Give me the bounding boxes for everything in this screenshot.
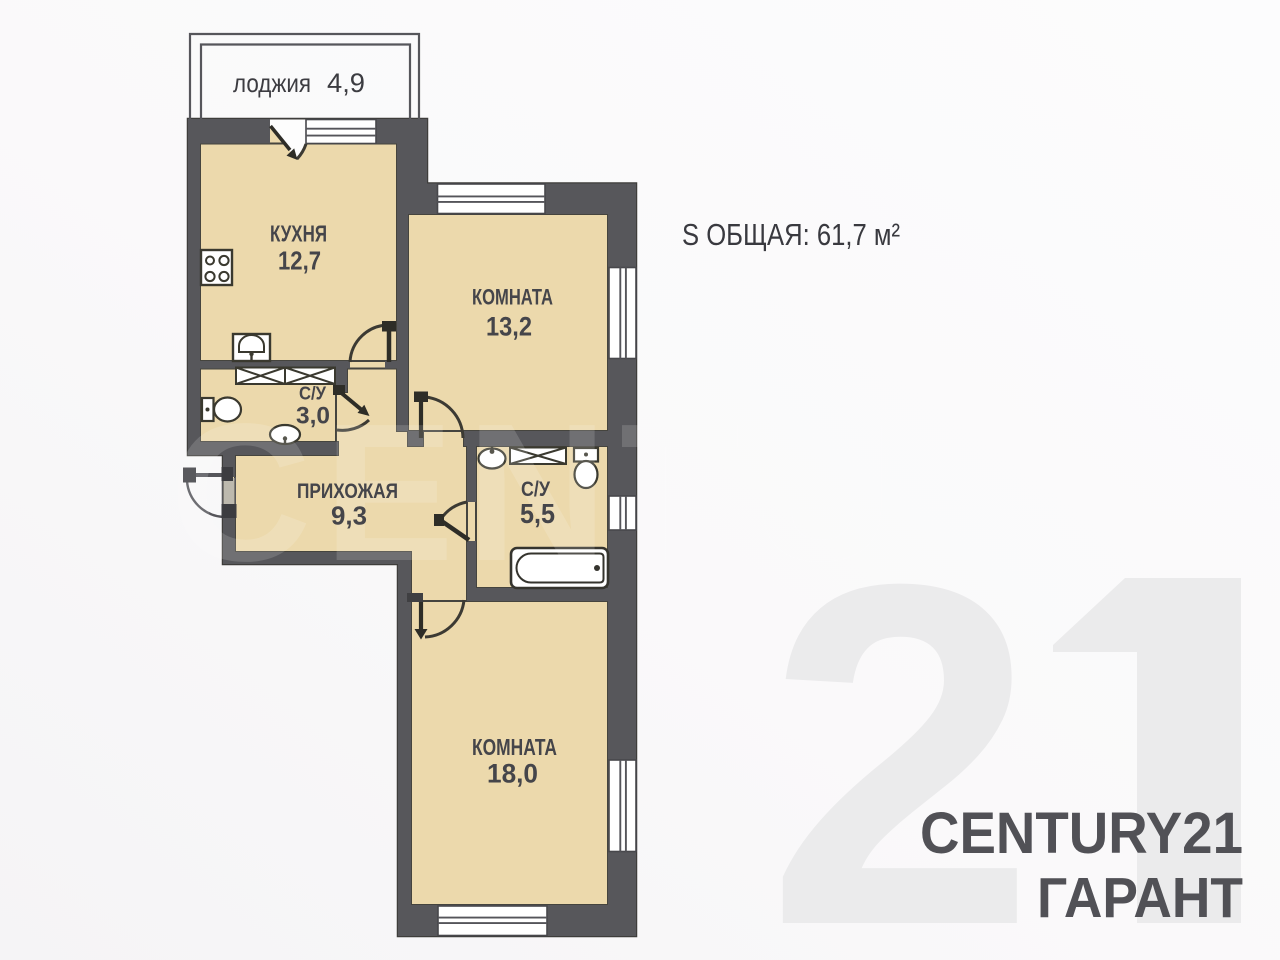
svg-text:2: 2 — [766, 483, 1036, 960]
svg-text:12,7: 12,7 — [278, 246, 321, 276]
svg-text:С/У: С/У — [299, 384, 327, 404]
svg-text:КОМНАТА: КОМНАТА — [472, 734, 557, 760]
svg-text:КОМНАТА: КОМНАТА — [472, 285, 553, 310]
svg-text:ГАРАНТ: ГАРАНТ — [1037, 866, 1243, 930]
svg-text:9,3: 9,3 — [331, 501, 367, 531]
svg-text:КУХНЯ: КУХНЯ — [270, 221, 327, 247]
svg-text:CENTURY21: CENTURY21 — [920, 801, 1243, 866]
svg-text:4,9: 4,9 — [327, 68, 365, 98]
svg-text:3,0: 3,0 — [296, 403, 330, 430]
svg-text:5,5: 5,5 — [520, 498, 555, 529]
svg-text:13,2: 13,2 — [486, 312, 532, 342]
svg-text:лоджия: лоджия — [233, 68, 311, 98]
svg-text:18,0: 18,0 — [487, 759, 538, 789]
svg-text:S ОБЩАЯ: 61,7 м²: S ОБЩАЯ: 61,7 м² — [682, 217, 900, 252]
